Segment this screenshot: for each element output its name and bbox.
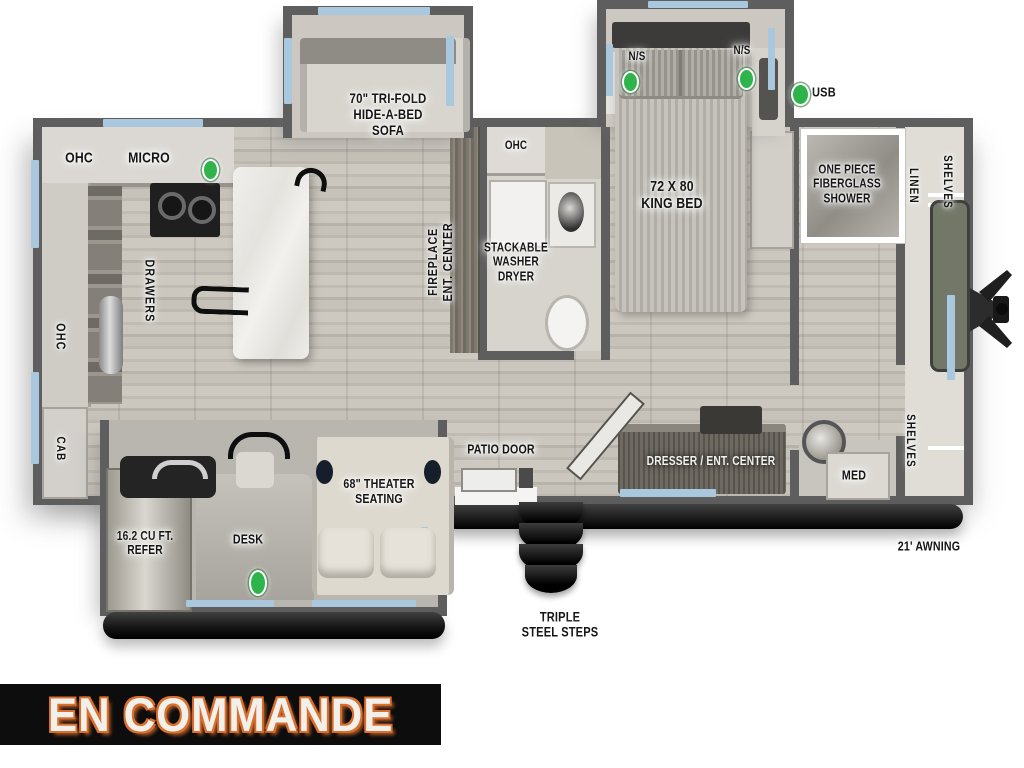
toilet — [545, 295, 589, 351]
drawers-label: DRAWERS — [142, 259, 157, 322]
desk-label: DESK — [233, 533, 263, 548]
king-bed-headboard — [612, 22, 750, 48]
washer-label: STACKABLE WASHER DRYER — [484, 241, 548, 284]
ns-left-label: N/S — [629, 50, 646, 64]
steps-label: TRIPLE STEEL STEPS — [522, 610, 599, 641]
window-strip — [103, 119, 203, 127]
slideout-awning-rail — [103, 612, 445, 639]
awning-label: 21' AWNING — [898, 540, 960, 555]
king-bed-pillow-split — [679, 50, 682, 96]
status-banner: EN COMMANDE — [0, 684, 441, 745]
window-strip — [606, 44, 613, 96]
desk-chair-back — [228, 432, 290, 459]
window-strip — [312, 600, 416, 607]
bathroom-bottom-wall — [478, 351, 574, 360]
linen-label: LINEN — [906, 168, 920, 204]
green-indicator-usb — [791, 83, 810, 106]
patio-door-label: PATIO DOOR — [467, 443, 535, 458]
king-bed-label: 72 X 80 KING BED — [641, 178, 702, 212]
theater-seat-cushion — [380, 528, 436, 578]
water-heater-cylinder — [99, 296, 123, 374]
island-chair — [191, 286, 249, 316]
refer-label: 16.2 CU FT. REFER — [117, 529, 173, 558]
status-banner-text: EN COMMANDE — [48, 687, 393, 742]
shelves-bottom-label: SHELVES — [903, 414, 917, 468]
window-strip — [284, 38, 292, 104]
triple-steel-steps — [519, 502, 583, 602]
patio-door-threshold — [519, 468, 533, 488]
shower-label: ONE PIECE FIBERGLASS SHOWER — [813, 163, 881, 206]
window-strip — [186, 600, 274, 607]
stove-burner — [188, 196, 216, 224]
step — [525, 565, 577, 593]
window-strip — [648, 1, 748, 8]
green-indicator-desk — [249, 570, 267, 596]
green-indicator-ns-right — [738, 68, 755, 90]
stove-burner — [158, 192, 186, 220]
dresser-label: DRESSER / ENT. CENTER — [647, 454, 776, 468]
sofa-backrest — [300, 38, 456, 64]
window-strip — [318, 7, 430, 15]
floorplan-canvas: OHC MICRO OHC DRAWERS CAB 70" TRI-FOLD H… — [0, 0, 1024, 768]
bathroom-right-wall — [601, 127, 610, 360]
closet-shelf-bar — [928, 446, 964, 450]
wardrobe — [750, 131, 794, 249]
window-strip — [446, 36, 454, 106]
window-strip — [947, 295, 955, 380]
window-strip — [31, 372, 39, 464]
window-strip — [768, 28, 775, 90]
green-indicator-ns-left — [622, 71, 639, 93]
bedroom-front-wall-lower — [790, 450, 799, 496]
shelves-top-label: SHELVES — [940, 155, 954, 209]
washer-dryer — [489, 180, 547, 248]
dresser-tv — [700, 406, 762, 434]
micro-label: MICRO — [128, 149, 170, 166]
patio-door-threshold — [461, 468, 517, 492]
refrigerator-handle — [152, 460, 208, 479]
ohc-kitchen-label: OHC — [65, 149, 93, 166]
theater-label: 68" THEATER SEATING — [343, 477, 414, 507]
window-strip — [31, 160, 39, 248]
bath-corner-cabinet — [545, 127, 601, 179]
med-label: MED — [842, 469, 866, 484]
window-strip — [620, 489, 716, 497]
cab-label: CAB — [53, 436, 67, 461]
theater-seat-cushion — [318, 528, 374, 578]
kitchen-counter-left — [42, 183, 91, 407]
kitchen-island — [233, 167, 309, 359]
fireplace-label: FIREPLACE ENT. CENTER — [426, 223, 456, 302]
bath-ohc-label: OHC — [505, 139, 527, 153]
ns-right-label: N/S — [734, 44, 751, 58]
ohc-side-label: OHC — [53, 323, 68, 350]
green-indicator-microwave — [202, 159, 219, 181]
bath-sink-basin — [558, 192, 584, 232]
sofa-label: 70" TRI-FOLD HIDE-A-BED SOFA — [350, 91, 427, 139]
theater-cupholder — [316, 460, 333, 484]
theater-cupholder — [424, 460, 441, 484]
usb-label: USB — [812, 86, 836, 101]
